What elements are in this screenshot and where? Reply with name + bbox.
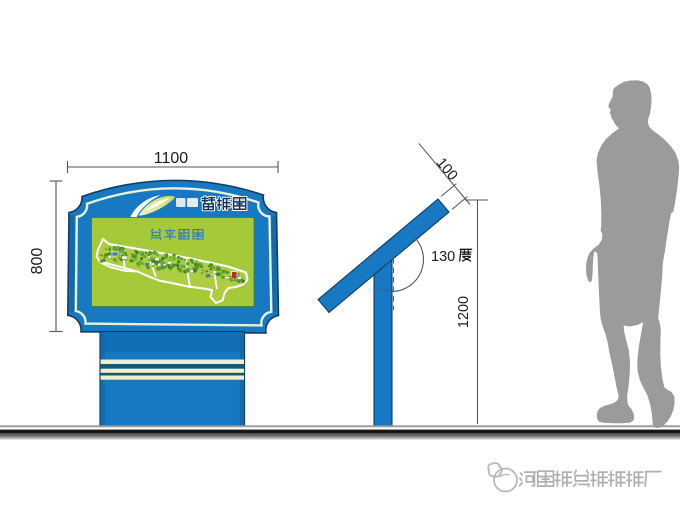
svg-text:1100: 1100	[154, 150, 189, 167]
svg-text:130: 130	[431, 249, 455, 265]
svg-text:1200: 1200	[456, 296, 472, 328]
svg-text:800: 800	[29, 248, 46, 275]
